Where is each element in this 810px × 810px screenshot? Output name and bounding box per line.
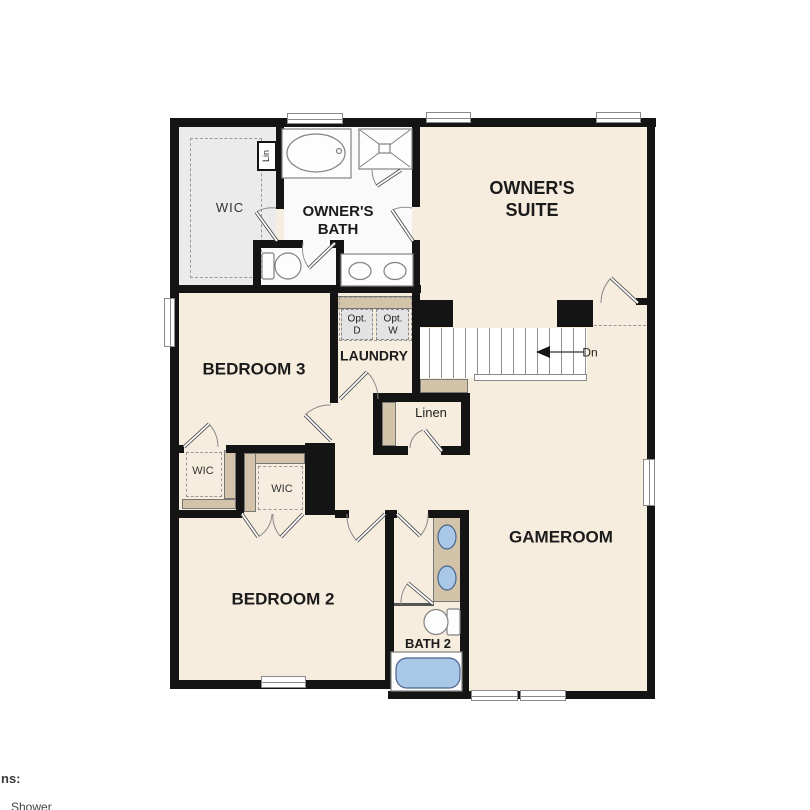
owners-bath-label-line2: BATH [318,222,359,239]
owners-bath-label-line1: OWNER'S [302,204,373,221]
fixtures-and-doors-overlay [0,0,810,810]
owners-suite-label-line1: OWNER'S [489,179,574,199]
toilet [262,253,301,279]
door-swing-owners-bath [392,207,413,241]
garden-tub [282,129,351,178]
door-swing-bedroom3 [305,405,331,441]
bath2-sinks [438,525,456,590]
legend-item-fragment: Shower [11,800,52,810]
laundry-label: LAUNDRY [340,348,408,363]
door-swing-linen [410,430,442,451]
door-swing-wic-bedroom2-right [273,514,303,537]
optional-washer-label-line2: W [388,326,397,337]
double-vanity-sinks [341,254,413,286]
door-swing-shower [372,170,401,186]
optional-dryer-label-line1: Opt. [348,314,367,325]
lin-closet-label: Lin [262,150,272,162]
door-swing-laundry [340,372,378,399]
owners-suite-label-line2: SUITE [505,201,558,221]
bath2-label: BATH 2 [405,637,451,651]
bedroom2-label: BEDROOM 2 [232,591,335,610]
wic-bedroom3-label: WIC [192,465,213,477]
bathtub [391,652,462,691]
optional-dryer-label-line2: D [353,326,360,337]
linen-label: Linen [415,406,447,420]
door-swing-bath2-inner [401,583,433,604]
wic-bedroom2-label: WIC [271,483,292,495]
legend-heading-fragment: ns: [1,771,21,786]
shower [359,129,412,169]
optional-washer-label-line1: Opt. [384,314,403,325]
gameroom-label: GAMEROOM [509,529,613,548]
toilet [424,609,460,635]
wic-main-label: WIC [216,201,244,215]
floor-plan-page: WIC Lin OWNER'S BATH OWNER'S SUITE BEDRO… [0,0,810,810]
door-swing-bath2 [397,514,428,536]
door-swing-wic-bedroom3 [184,424,218,447]
door-swing-wic-bedroom2-left [242,514,272,537]
bedroom3-label: BEDROOM 3 [203,361,306,380]
door-swing-bedroom2 [347,514,385,541]
door-swing-wic-main [256,208,277,241]
door-swing-toilet-closet [302,243,335,268]
stairs-down-arrow-icon [536,346,584,358]
stairs-down-label: Dn [582,346,597,359]
door-swing-owners-suite [601,278,638,303]
